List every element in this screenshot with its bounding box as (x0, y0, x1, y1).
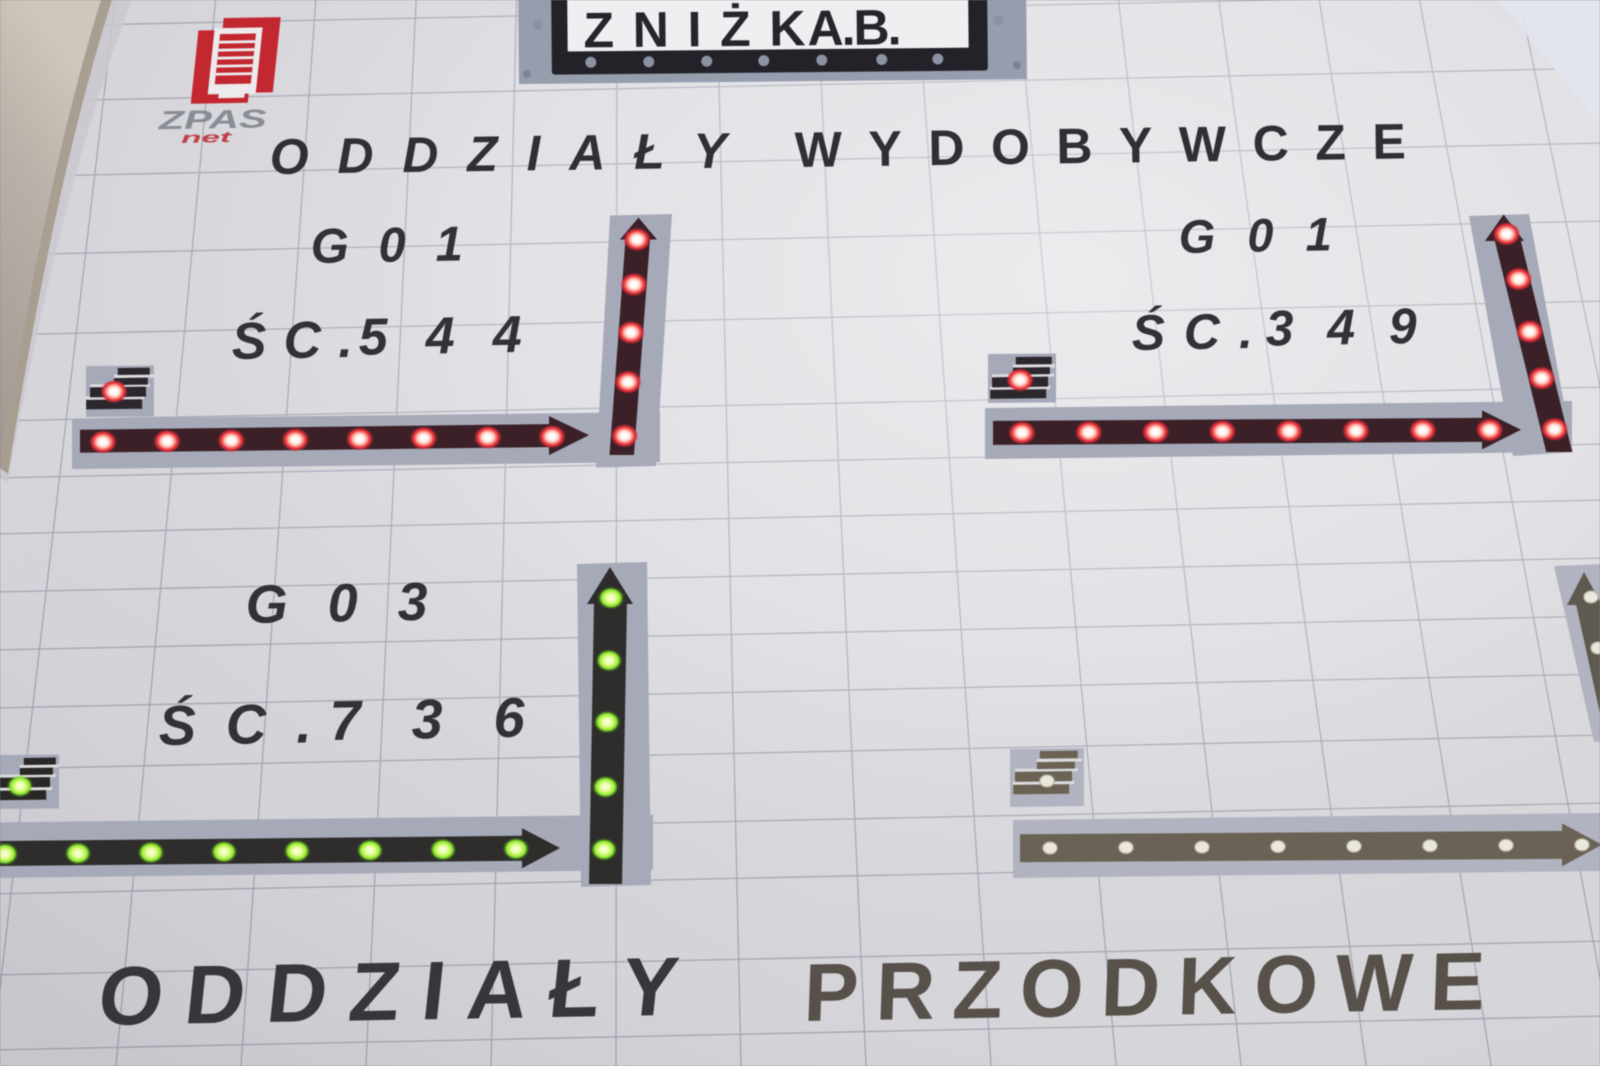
svg-text:G01: G01 (1178, 207, 1332, 263)
svg-text:A.B.: A.B. (807, 0, 902, 56)
svg-text:G03: G03 (245, 572, 428, 635)
svg-text:Z N I Ż K: Z N I Ż K (583, 0, 806, 58)
svg-text:544: 544 (358, 306, 522, 367)
svg-text:net: net (181, 129, 234, 147)
svg-text:349: 349 (1265, 298, 1417, 357)
svg-text:G01: G01 (310, 217, 463, 274)
svg-text:PRZODKOWE: PRZODKOWE (802, 936, 1486, 1039)
svg-text:736: 736 (329, 686, 526, 752)
